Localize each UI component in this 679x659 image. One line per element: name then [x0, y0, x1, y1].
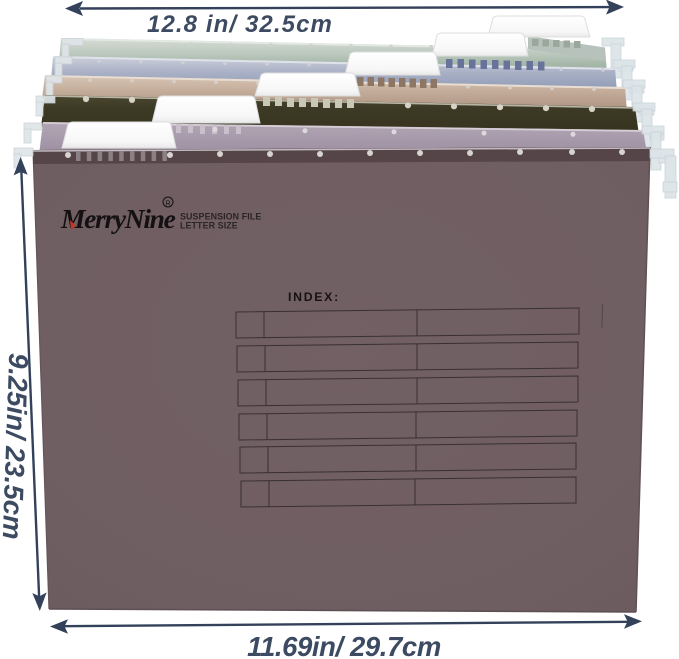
svg-text:12.8 in/ 32.5cm: 12.8 in/ 32.5cm — [147, 11, 333, 38]
svg-text:R: R — [165, 201, 170, 208]
svg-text:LETTER SIZE: LETTER SIZE — [180, 221, 238, 231]
svg-text:INDEX:: INDEX: — [288, 290, 340, 304]
svg-text:9.25in/ 23.5cm: 9.25in/ 23.5cm — [0, 353, 34, 540]
svg-text:11.69in/ 29.7cm: 11.69in/ 29.7cm — [247, 631, 441, 659]
svg-text:MerryNine: MerryNine — [60, 203, 176, 234]
